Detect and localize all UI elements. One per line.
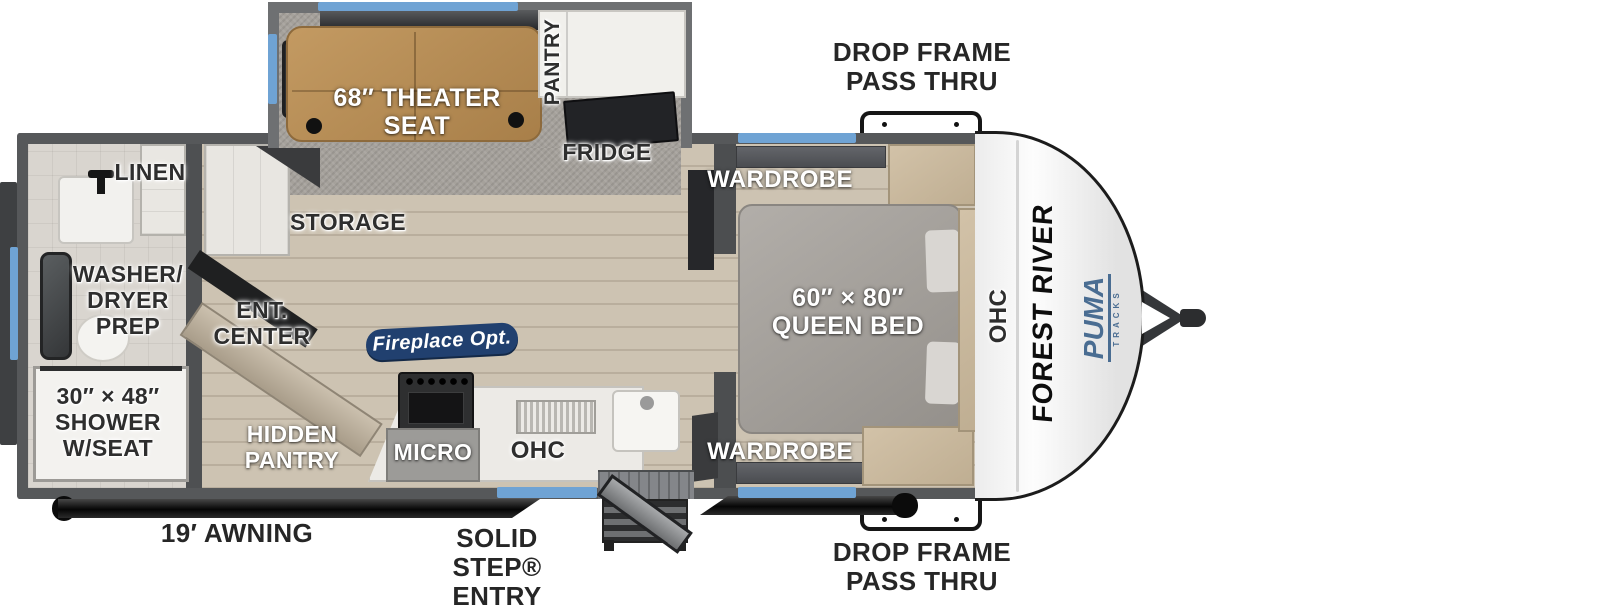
stove <box>398 372 474 432</box>
label-micro: MICRO <box>387 440 479 466</box>
storage-cabinet <box>204 144 290 256</box>
label-washer-dryer-prep: WASHER/ DRYER PREP <box>63 262 193 339</box>
shower-door-track <box>40 366 182 371</box>
label-theater-seat: 68″ THEATER SEAT <box>322 84 512 140</box>
label-ohc-bedroom-text: OHC <box>986 289 1013 344</box>
bedroom-window-strip-bottom <box>738 487 856 498</box>
wardrobe-top-cabinet <box>888 144 976 206</box>
label-pantry: PANTRY <box>541 7 565 117</box>
wardrobe-top-counter <box>736 146 886 168</box>
bracket-rivet <box>954 517 959 522</box>
slide-window-strip-left <box>268 34 277 104</box>
bed-pillow <box>925 341 961 404</box>
bracket-rivet <box>882 122 887 127</box>
tracks-wordmark: TRACKS <box>1112 289 1121 346</box>
awning-bar <box>58 499 540 518</box>
ohc-grille <box>516 400 596 434</box>
label-ent-center: ENT. CENTER <box>207 298 317 350</box>
label-pantry-text: PANTRY <box>541 19 565 105</box>
drop-frame-bar <box>700 496 905 515</box>
label-awning: 19′ AWNING <box>137 519 337 548</box>
stove-oven-window <box>408 392 464 424</box>
cupholder <box>306 118 322 134</box>
label-ohc-kitchen: OHC <box>503 438 573 465</box>
slide-window-strip-top <box>318 2 518 11</box>
stove-burners <box>404 376 468 388</box>
sink-faucet-icon <box>640 396 654 410</box>
bedroom-wall-top <box>714 144 736 254</box>
hitch-coupler <box>1180 309 1206 327</box>
puma-wordmark: PUMA <box>1080 274 1111 362</box>
wardrobe-bottom-cabinet <box>862 426 974 486</box>
bracket-rivet <box>954 122 959 127</box>
label-linen: LINEN <box>100 160 200 186</box>
label-hidden-pantry: HIDDEN PANTRY <box>232 422 352 474</box>
label-wardrobe-bottom: WARDROBE <box>700 439 860 466</box>
label-fireplace-opt: Fireplace Opt. <box>372 327 512 357</box>
label-drop-frame-bottom: DROP FRAME PASS THRU <box>822 538 1022 596</box>
forest-river-logo: FOREST RIVER <box>1028 179 1058 448</box>
front-cap-seam <box>1016 140 1019 492</box>
entry-steps-leg <box>604 540 614 551</box>
bracket-rivet <box>882 517 887 522</box>
label-shower: 30″ × 48″ SHOWER W/SEAT <box>38 384 178 461</box>
forest-river-text: FOREST RIVER <box>1027 202 1059 424</box>
label-storage: STORAGE <box>288 210 408 236</box>
rear-window-strip <box>10 247 18 360</box>
linen-cabinet <box>140 144 186 236</box>
kitchen-sink <box>612 390 680 452</box>
label-ohc-bedroom: OHC <box>987 286 1011 346</box>
label-wardrobe-top: WARDROBE <box>700 167 860 194</box>
drop-frame-bar-endcap <box>892 493 918 518</box>
label-solid-step-entry: SOLID STEP® ENTRY <box>412 524 582 611</box>
bathroom-sink-counter <box>58 176 134 244</box>
puma-tracks-logo: PUMA TRACKS <box>1077 260 1123 376</box>
bedroom-window-strip-top <box>738 133 856 143</box>
label-drop-frame-top: DROP FRAME PASS THRU <box>822 38 1022 96</box>
label-fridge: FRIDGE <box>557 140 657 166</box>
floorplan-canvas: DROP FRAME PASS THRU DROP FRAME PASS THR… <box>0 0 1600 613</box>
label-queen-bed: 60″ × 80″ QUEEN BED <box>758 284 938 340</box>
kitchen-window-strip-bottom <box>497 487 597 498</box>
